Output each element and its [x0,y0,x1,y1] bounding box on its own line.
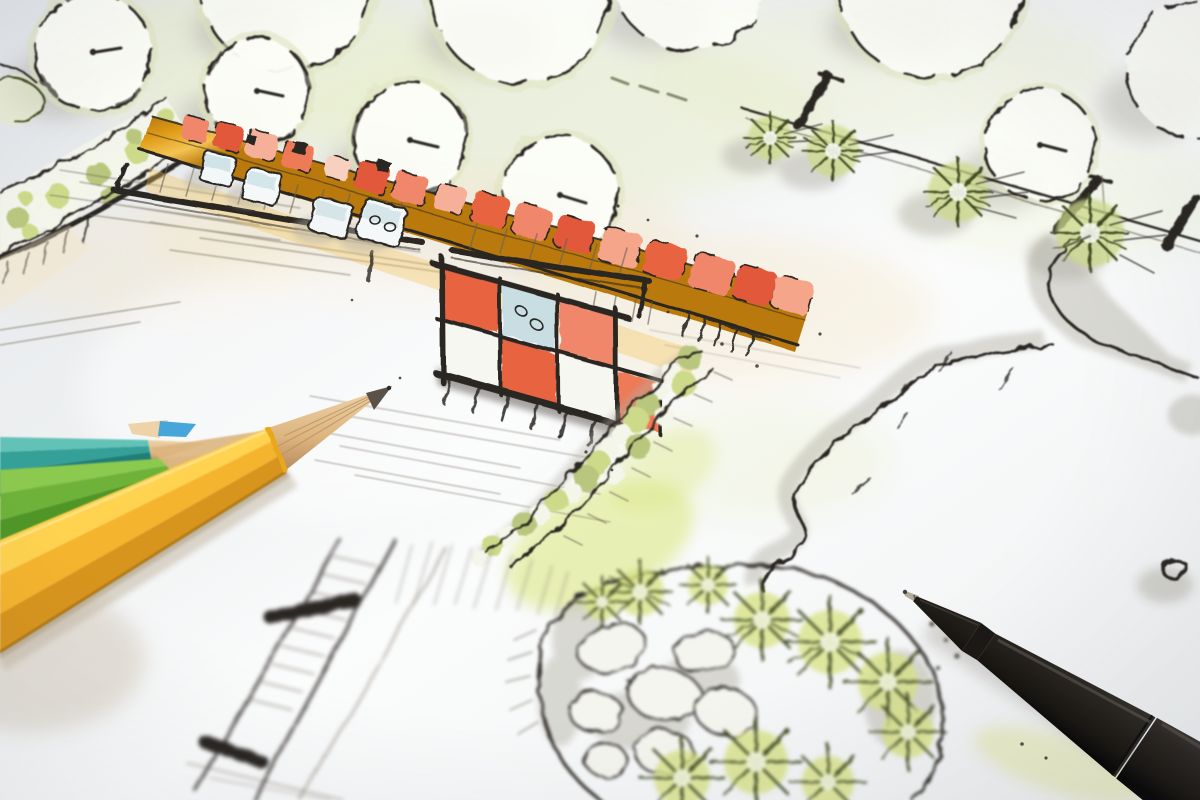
vignette-overlay [0,0,1200,800]
garden-plan-drawing [0,0,1200,800]
garden-plan-photo: Hand-drawn landscape architecture garden… [0,0,1200,800]
